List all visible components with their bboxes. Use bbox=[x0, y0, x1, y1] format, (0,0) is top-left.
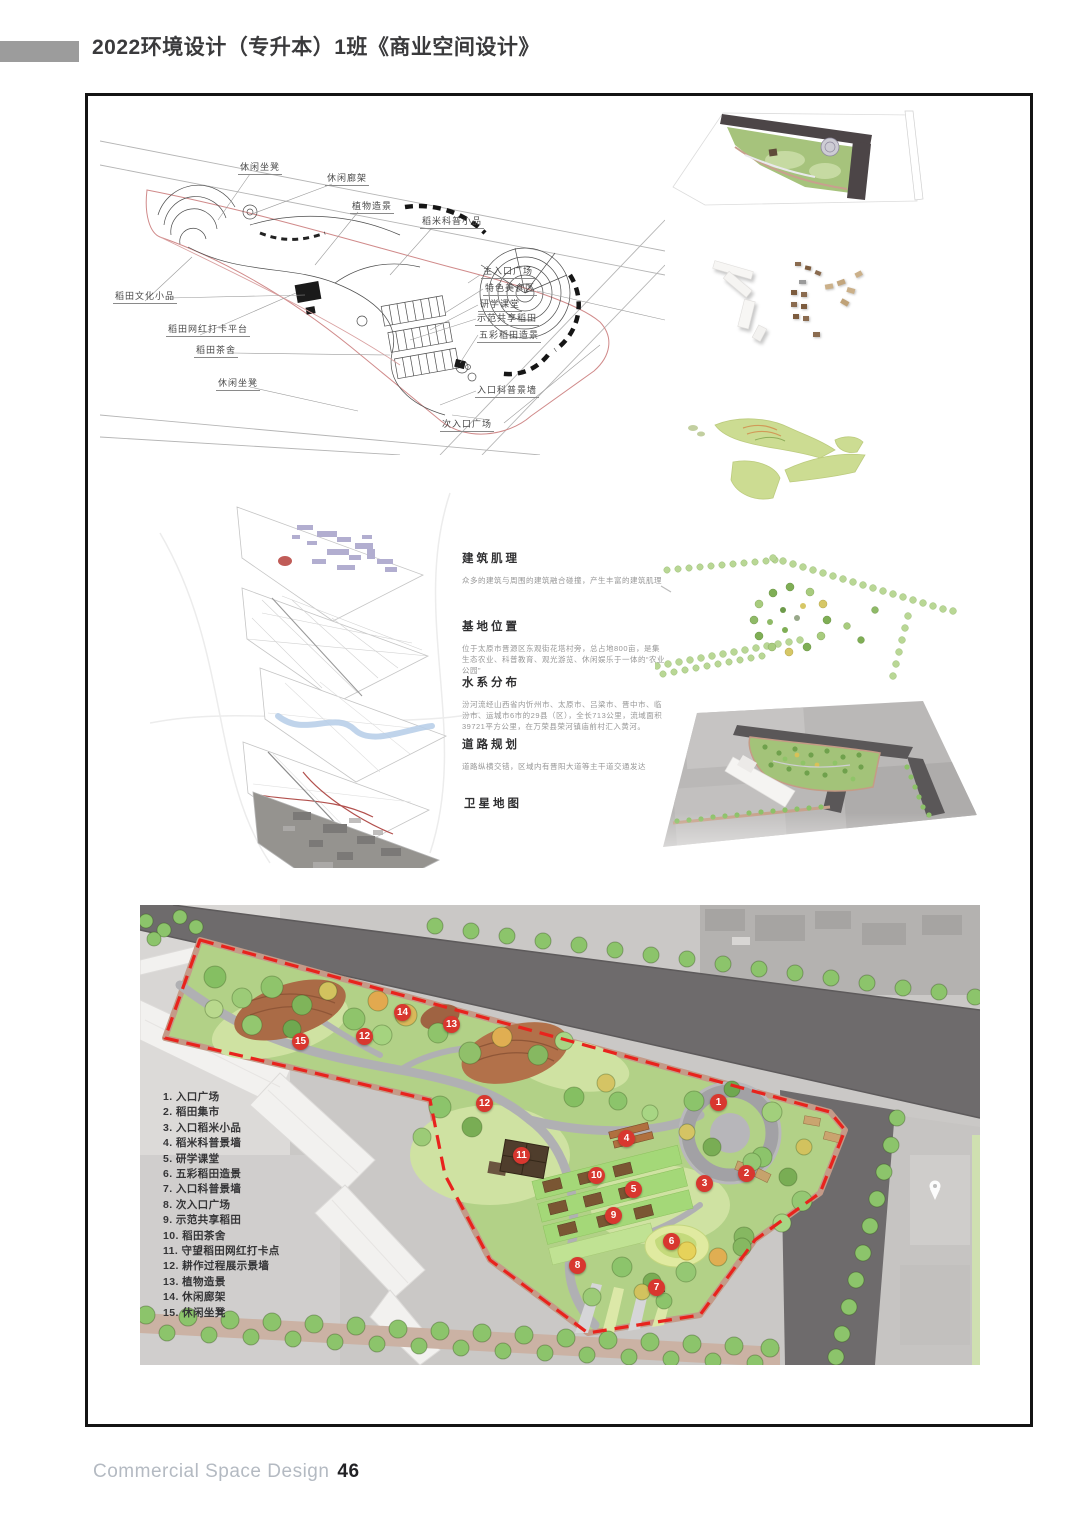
plan-buildings bbox=[295, 281, 466, 369]
site-analysis-stack bbox=[150, 473, 480, 868]
tree-layout-render bbox=[655, 548, 970, 693]
analysis-section: 卫星地图 bbox=[464, 795, 669, 811]
legend-item: 12. 耕作过程展示景墙 bbox=[163, 1259, 280, 1274]
legend-item: 10. 稻田茶舍 bbox=[163, 1229, 280, 1244]
analysis-heading: 水系分布 bbox=[462, 674, 667, 690]
plan-marker: 1 bbox=[710, 1094, 727, 1111]
line-plan-drawing bbox=[100, 115, 665, 455]
context-road-lines bbox=[100, 141, 665, 455]
analysis-heading: 建筑肌理 bbox=[462, 550, 667, 566]
analysis-section: 建筑肌理 众多的建筑与周围的建筑融合碰撞，产生丰富的建筑肌理 bbox=[462, 550, 667, 586]
footer-page-number: 46 bbox=[337, 1461, 359, 1482]
analysis-desc: 汾河流经山西省内忻州市、太原市、吕梁市、晋中市、临汾市、运城市6市的29县（区）… bbox=[462, 699, 667, 732]
plan-marker: 14 bbox=[394, 1004, 411, 1021]
plan-marker: 15 bbox=[292, 1033, 309, 1050]
dashed-trail bbox=[260, 233, 325, 239]
legend-item: 3. 入口稻米小品 bbox=[163, 1121, 280, 1136]
footer: Commercial Space Design46 bbox=[93, 1461, 360, 1483]
plan-callout-label: 休闲坐凳 bbox=[216, 376, 260, 391]
plan-marker: 9 bbox=[605, 1207, 622, 1224]
plan-marker: 12 bbox=[356, 1028, 373, 1045]
portfolio-page: 2022环境设计（专升本）1班《商业空间设计》 bbox=[0, 0, 1080, 1527]
plan-callout-label: 稻田网红打卡平台 bbox=[166, 322, 250, 337]
plan-marker: 12 bbox=[476, 1095, 493, 1112]
plan-callout-label: 入口科普景墙 bbox=[475, 383, 539, 398]
site-location-dot bbox=[278, 556, 292, 566]
green-strip bbox=[972, 1135, 980, 1365]
plan-marker: 7 bbox=[648, 1279, 665, 1296]
legend-item: 6. 五彩稻田造景 bbox=[163, 1167, 280, 1182]
plan-callout-label: 次入口广场 bbox=[440, 417, 494, 432]
analysis-heading: 道路规划 bbox=[462, 736, 667, 752]
footer-label: Commercial Space Design bbox=[93, 1461, 329, 1482]
analysis-heading: 基地位置 bbox=[462, 618, 667, 634]
plan-marker: 4 bbox=[618, 1130, 635, 1147]
legend-item: 7. 入口科普景墙 bbox=[163, 1182, 280, 1197]
legend: 1. 入口广场 2. 稻田集市 3. 入口稻米小品 4. 稻米科普景墙 5. 研… bbox=[163, 1090, 280, 1321]
legend-item: 14. 休闲廊架 bbox=[163, 1290, 280, 1305]
terrain-render bbox=[685, 410, 895, 510]
analysis-desc: 道路纵横交错，区域内有晋阳大道等主干道交通发达 bbox=[462, 761, 667, 772]
plan-callout-label: 示范共享稻田 bbox=[475, 311, 539, 326]
legend-item: 13. 植物造景 bbox=[163, 1275, 280, 1290]
plan-callout-label: 休闲坐凳 bbox=[238, 160, 282, 175]
legend-item: 2. 稻田集市 bbox=[163, 1105, 280, 1120]
page-title: 2022环境设计（专升本）1班《商业空间设计》 bbox=[92, 31, 540, 61]
tree-row bbox=[655, 555, 956, 680]
plan-marker: 8 bbox=[569, 1257, 586, 1274]
plan-callout-label: 稻田茶舍 bbox=[194, 343, 238, 358]
analysis-section: 水系分布 汾河流经山西省内忻州市、太原市、吕梁市、晋中市、临汾市、运城市6市的2… bbox=[462, 674, 667, 732]
legend-item: 1. 入口广场 bbox=[163, 1090, 280, 1105]
plan-callout-label: 稻田文化小品 bbox=[113, 289, 177, 304]
aerial-render bbox=[645, 695, 980, 890]
header-gray-bar bbox=[0, 41, 79, 62]
plan-callout-label: 五彩稻田造景 bbox=[477, 328, 541, 343]
legend-item: 8. 次入口广场 bbox=[163, 1198, 280, 1213]
plan-marker: 3 bbox=[696, 1175, 713, 1192]
tree-cluster-ring bbox=[750, 583, 878, 656]
analysis-section: 道路规划 道路纵横交错，区域内有晋阳大道等主干道交通发达 bbox=[462, 736, 667, 772]
furniture-layout-render bbox=[695, 250, 975, 350]
legend-item: 5. 研学课堂 bbox=[163, 1152, 280, 1167]
plan-marker: 5 bbox=[625, 1181, 642, 1198]
plan-callout-label: 稻米科普小品 bbox=[420, 214, 484, 229]
plan-callout-label: 研学课堂 bbox=[478, 297, 522, 312]
rice-strip-plots bbox=[381, 295, 459, 379]
legend-item: 15. 休闲坐凳 bbox=[163, 1306, 280, 1321]
plan-callout-label: 主入口广场 bbox=[481, 264, 535, 279]
plan-marker: 10 bbox=[588, 1167, 605, 1184]
analysis-heading: 卫星地图 bbox=[464, 795, 669, 811]
legend-item: 9. 示范共享稻田 bbox=[163, 1213, 280, 1228]
plan-callout-label: 休闲廊架 bbox=[325, 171, 369, 186]
plan-marker: 2 bbox=[738, 1165, 755, 1182]
analysis-desc: 众多的建筑与周围的建筑融合碰撞，产生丰富的建筑肌理 bbox=[462, 575, 667, 586]
plan-callout-label: 植物造景 bbox=[350, 199, 394, 214]
plan-callout-label: 特色美食区 bbox=[483, 281, 537, 296]
plan-marker: 11 bbox=[513, 1147, 530, 1164]
legend-item: 11. 守望稻田网红打卡点 bbox=[163, 1244, 280, 1259]
plan-marker: 6 bbox=[663, 1233, 680, 1250]
analysis-section: 基地位置 位于太原市晋源区东观街花塔村旁，总占地800亩，是集生态农业、科普教育… bbox=[462, 618, 667, 676]
legend-item: 4. 稻米科普景墙 bbox=[163, 1136, 280, 1151]
analysis-desc: 位于太原市晋源区东观街花塔村旁，总占地800亩，是集生态农业、科普教育、观光游览… bbox=[462, 643, 667, 676]
plan-marker: 13 bbox=[443, 1016, 460, 1033]
